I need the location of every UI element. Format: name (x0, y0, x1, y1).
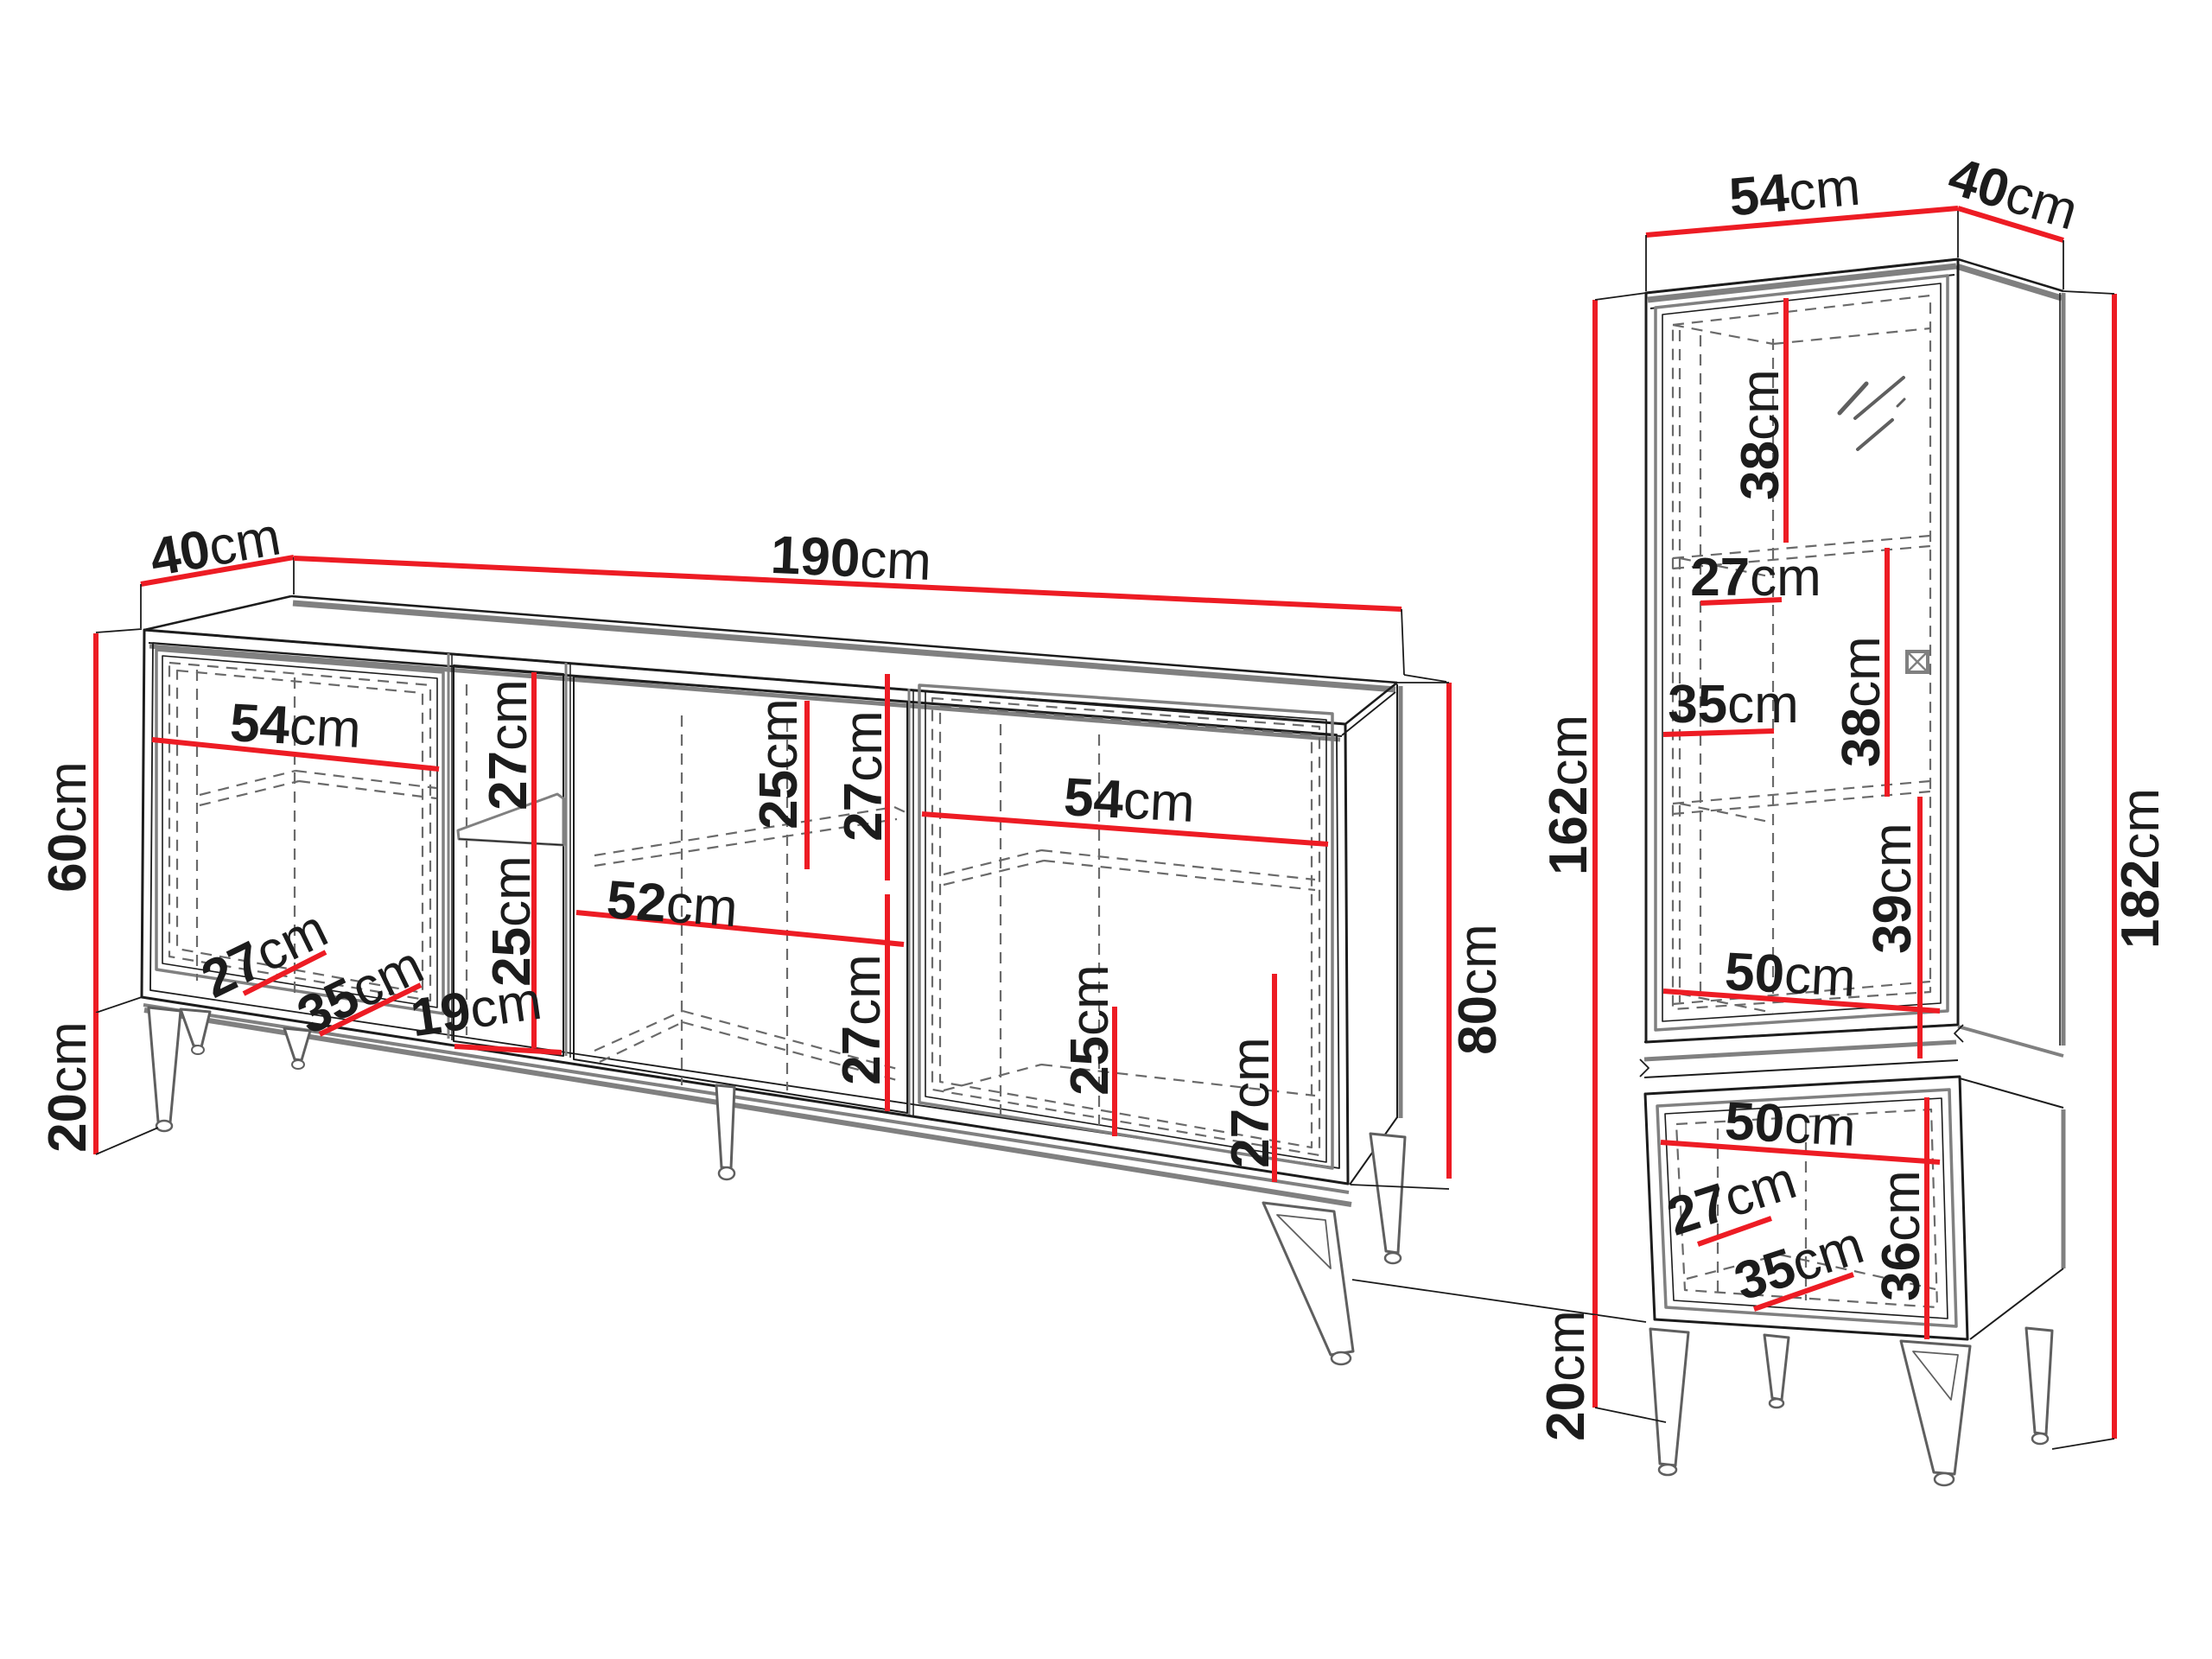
svg-text:52cm: 52cm (605, 869, 740, 938)
svg-text:190cm: 190cm (770, 524, 933, 591)
svg-text:162cm: 162cm (1539, 715, 1599, 875)
svg-text:25cm: 25cm (749, 698, 809, 829)
svg-text:39cm: 39cm (1863, 823, 1923, 954)
svg-text:20cm: 20cm (1536, 1310, 1596, 1441)
svg-text:27cm: 27cm (834, 710, 893, 842)
svg-text:54cm: 54cm (1726, 156, 1862, 227)
svg-text:20cm: 20cm (38, 1021, 98, 1153)
svg-text:25cm: 25cm (482, 855, 542, 987)
svg-text:54cm: 54cm (228, 693, 362, 760)
svg-text:27cm: 27cm (1221, 1037, 1281, 1168)
svg-text:27cm: 27cm (832, 954, 892, 1085)
svg-text:38cm: 38cm (1731, 369, 1790, 500)
svg-text:36cm: 36cm (1872, 1170, 1931, 1301)
svg-text:182cm: 182cm (2111, 788, 2171, 949)
svg-text:50cm: 50cm (1723, 942, 1857, 1008)
svg-text:38cm: 38cm (1832, 636, 1891, 767)
svg-text:27cm: 27cm (1690, 548, 1821, 607)
svg-text:35cm: 35cm (1668, 675, 1799, 734)
svg-text:25cm: 25cm (1060, 964, 1120, 1096)
svg-text:50cm: 50cm (1723, 1091, 1857, 1158)
svg-text:80cm: 80cm (1448, 924, 1508, 1055)
svg-text:27cm: 27cm (479, 679, 538, 810)
svg-text:54cm: 54cm (1062, 767, 1196, 834)
svg-text:60cm: 60cm (38, 761, 98, 893)
